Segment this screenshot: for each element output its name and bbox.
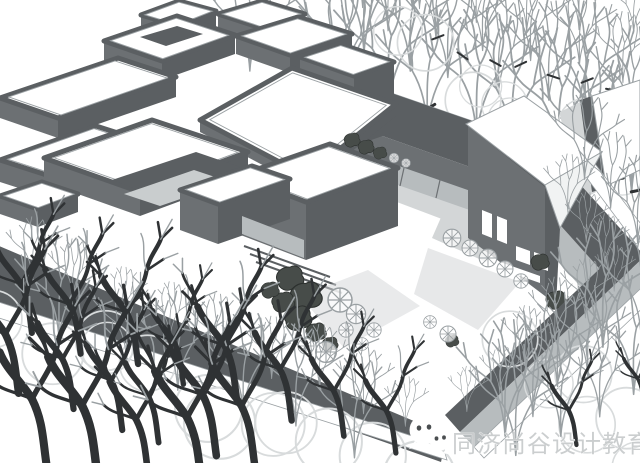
wechat-eye — [417, 425, 422, 430]
plan-tree-icon — [462, 240, 478, 256]
gatehouse-window — [497, 216, 507, 244]
plan-tree-icon — [389, 153, 399, 163]
plan-tree-icon — [497, 261, 513, 277]
watermark-text: 同济尚谷设计教育 — [452, 430, 640, 458]
plan-tree-icon — [479, 249, 497, 267]
plan-tree-icon — [443, 229, 461, 247]
wechat-bubble-small — [430, 430, 451, 451]
shrub-icon — [344, 133, 360, 147]
plan-tree-icon — [514, 274, 528, 288]
plan-tree-icon — [402, 159, 411, 168]
shrub-icon — [373, 147, 387, 159]
wechat-eye — [442, 435, 446, 439]
plan-tree-icon — [339, 323, 353, 337]
plan-tree-icon — [440, 326, 456, 342]
wechat-eye — [435, 436, 439, 440]
architectural-rendering: 同济尚谷设计教育 — [0, 0, 640, 463]
gatehouse-window — [482, 210, 492, 238]
shrub-icon — [531, 254, 549, 270]
shrub-icon — [358, 140, 374, 154]
wechat-eye — [427, 424, 432, 429]
plan-tree-icon — [367, 323, 381, 337]
rendering-svg: 同济尚谷设计教育 — [0, 0, 640, 463]
plan-tree-icon — [424, 316, 437, 329]
